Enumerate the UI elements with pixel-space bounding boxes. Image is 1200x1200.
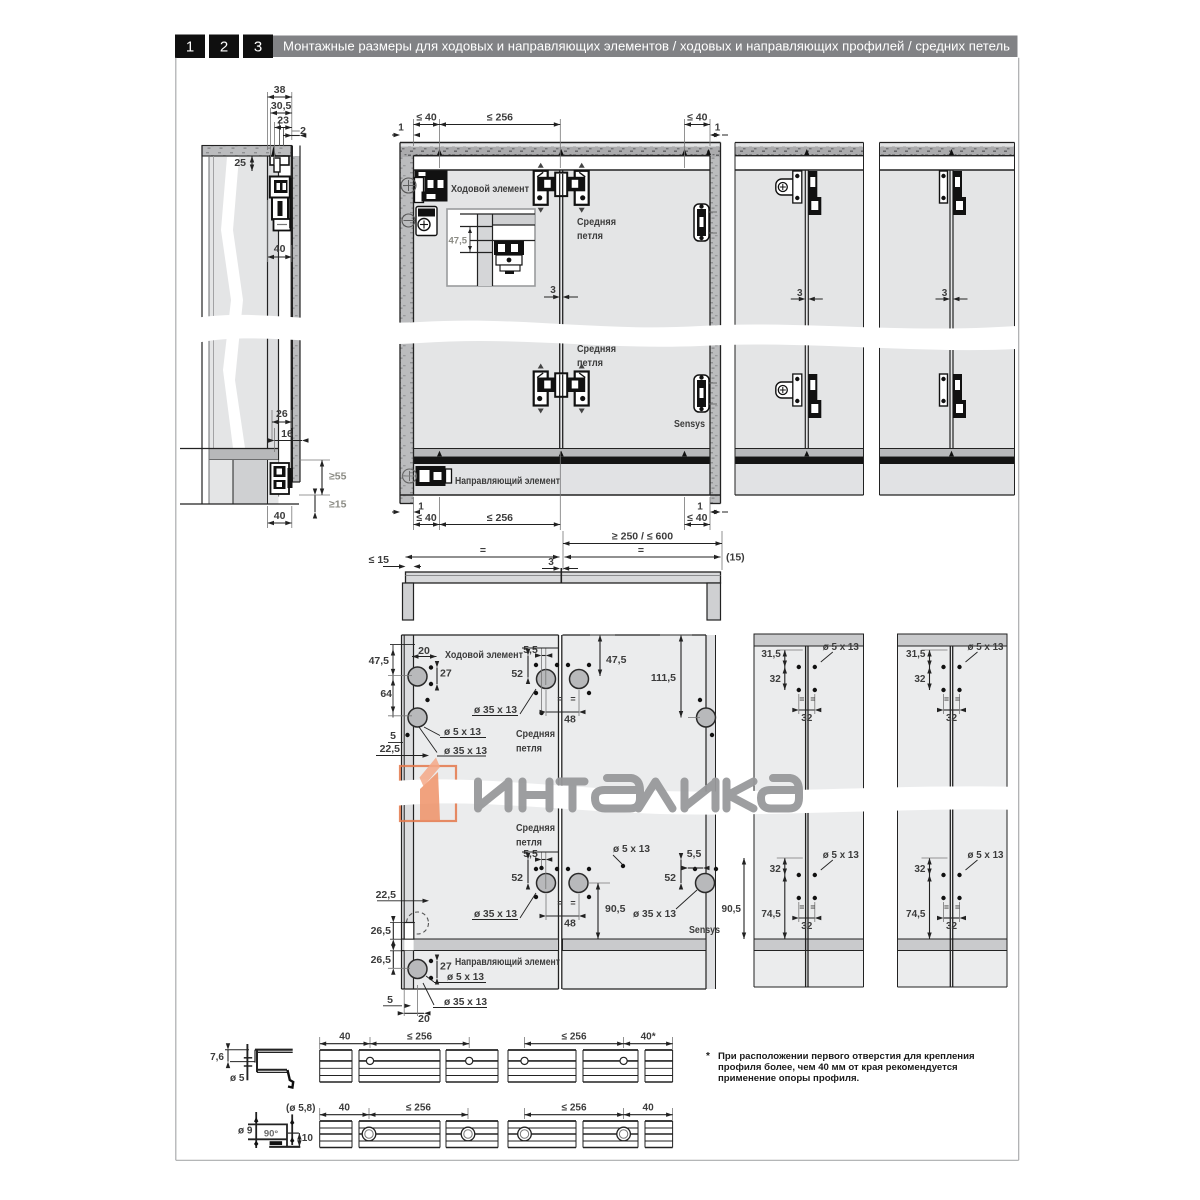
svg-text:31,5: 31,5: [761, 649, 781, 660]
svg-text:20: 20: [418, 645, 430, 657]
svg-text:64: 64: [380, 688, 392, 700]
svg-text:≥15: ≥15: [329, 499, 347, 511]
svg-text:Ходовой элемент: Ходовой элемент: [445, 649, 523, 661]
svg-text:2: 2: [220, 39, 228, 56]
svg-text:петля: петля: [516, 837, 542, 849]
svg-text:32: 32: [770, 864, 782, 875]
svg-text:48: 48: [564, 714, 576, 726]
svg-text:40*: 40*: [641, 1032, 656, 1043]
svg-text:ø 5: ø 5: [230, 1073, 245, 1084]
svg-text:26,5: 26,5: [371, 925, 392, 937]
svg-text:74,5: 74,5: [906, 909, 926, 920]
svg-text:Средняя: Средняя: [516, 728, 555, 740]
svg-text:≥ 250 / ≤ 600: ≥ 250 / ≤ 600: [612, 531, 673, 543]
svg-text:Направляющий элемент: Направляющий элемент: [455, 475, 560, 487]
svg-text:10: 10: [302, 1133, 314, 1144]
svg-text:Sensys: Sensys: [689, 924, 720, 936]
svg-text:32: 32: [770, 674, 782, 685]
svg-text:(15): (15): [726, 552, 745, 564]
svg-text:5: 5: [390, 730, 396, 742]
svg-text:27: 27: [440, 668, 452, 680]
svg-text:Ходовой элемент: Ходовой элемент: [451, 183, 529, 195]
svg-text:петля: петля: [516, 743, 542, 755]
svg-text:ø 9: ø 9: [238, 1126, 253, 1137]
svg-text:5,5: 5,5: [687, 848, 702, 860]
svg-text:=: =: [944, 902, 949, 912]
svg-text:=: =: [480, 545, 486, 557]
svg-text:При расположении первого отвер: При расположении первого отверстия для к…: [718, 1051, 975, 1062]
svg-text:≤ 256: ≤ 256: [487, 512, 513, 524]
svg-text:74,5: 74,5: [761, 909, 781, 920]
svg-text:26: 26: [276, 408, 288, 420]
svg-text:≤ 256: ≤ 256: [407, 1032, 432, 1043]
svg-text:26,5: 26,5: [371, 954, 392, 966]
svg-text:25: 25: [234, 157, 246, 169]
svg-text:Sensys: Sensys: [674, 418, 705, 430]
svg-text:5: 5: [387, 994, 393, 1006]
svg-text:40: 40: [643, 1103, 655, 1114]
svg-text:=: =: [944, 694, 949, 704]
svg-text:22,5: 22,5: [380, 743, 401, 755]
svg-text:=: =: [557, 694, 562, 704]
svg-text:Направляющий элемент: Направляющий элемент: [455, 956, 560, 968]
svg-text:32: 32: [801, 713, 813, 724]
svg-text:32: 32: [946, 713, 958, 724]
svg-text:=: =: [799, 694, 804, 704]
svg-text:=: =: [955, 902, 960, 912]
svg-text:7,6: 7,6: [210, 1052, 224, 1063]
svg-text:90°: 90°: [264, 1128, 279, 1139]
svg-text:16: 16: [281, 428, 293, 440]
svg-text:1: 1: [398, 123, 404, 134]
svg-text:≤ 256: ≤ 256: [562, 1103, 587, 1114]
svg-text:20: 20: [418, 1013, 430, 1025]
svg-text:30,5: 30,5: [271, 100, 292, 112]
svg-text:40: 40: [339, 1103, 351, 1114]
svg-text:32: 32: [914, 864, 926, 875]
svg-text:52: 52: [511, 668, 523, 680]
svg-text:ø 35 x 13: ø 35 x 13: [444, 996, 487, 1008]
svg-text:≤ 40: ≤ 40: [687, 512, 708, 524]
svg-text:ø 5 x 13: ø 5 x 13: [968, 850, 1004, 861]
svg-text:1: 1: [697, 502, 703, 513]
svg-text:32: 32: [946, 921, 958, 932]
svg-text:ø 5 x 13: ø 5 x 13: [968, 642, 1004, 653]
svg-text:Монтажные размеры для ходовых: Монтажные размеры для ходовых и направля…: [283, 39, 1010, 54]
svg-text:48: 48: [564, 918, 576, 930]
svg-text:=: =: [799, 902, 804, 912]
svg-text:3: 3: [548, 557, 554, 568]
svg-text:≤ 256: ≤ 256: [562, 1032, 587, 1043]
svg-text:ø 35 x 13: ø 35 x 13: [444, 745, 487, 757]
svg-text:Средняя: Средняя: [516, 822, 555, 834]
svg-text:≥55: ≥55: [329, 471, 347, 483]
svg-text:ø 35 x 13: ø 35 x 13: [474, 908, 517, 920]
svg-text:40: 40: [274, 243, 286, 255]
svg-text:111,5: 111,5: [651, 672, 676, 684]
svg-text:32: 32: [801, 921, 813, 932]
svg-text:ø 35 x 13: ø 35 x 13: [474, 704, 517, 716]
svg-text:петля: петля: [577, 357, 603, 369]
svg-text:=: =: [557, 898, 562, 908]
svg-text:≤ 256: ≤ 256: [487, 112, 513, 124]
svg-text:ø 5 x 13: ø 5 x 13: [447, 971, 484, 983]
svg-text:31,5: 31,5: [906, 649, 926, 660]
svg-text:38: 38: [274, 84, 286, 96]
svg-text:ø 5 x 13: ø 5 x 13: [823, 642, 859, 653]
svg-text:≤ 40: ≤ 40: [687, 112, 708, 124]
svg-text:40: 40: [339, 1032, 351, 1043]
svg-text:23: 23: [277, 115, 289, 127]
svg-text:=: =: [638, 545, 644, 557]
svg-text:петля: петля: [577, 230, 603, 242]
svg-text:1: 1: [715, 123, 721, 134]
svg-text:90,5: 90,5: [722, 904, 742, 915]
svg-text:≤ 40: ≤ 40: [416, 512, 437, 524]
svg-text:2: 2: [300, 125, 306, 137]
svg-text:52: 52: [511, 872, 523, 884]
svg-text:90,5: 90,5: [605, 903, 626, 915]
svg-text:=: =: [570, 694, 575, 704]
svg-text:22,5: 22,5: [376, 889, 397, 901]
svg-text:47,5: 47,5: [606, 654, 627, 666]
svg-text:применение опоры профиля.: применение опоры профиля.: [718, 1073, 859, 1084]
svg-text:(ø 5,8): (ø 5,8): [286, 1103, 315, 1114]
svg-text:52: 52: [664, 872, 676, 884]
svg-text:=: =: [810, 902, 815, 912]
svg-text:≤ 256: ≤ 256: [406, 1103, 431, 1114]
svg-text:ø 5 x 13: ø 5 x 13: [823, 850, 859, 861]
svg-text:профиля более, чем 40 мм от кр: профиля более, чем 40 мм от края рекомен…: [718, 1062, 958, 1073]
svg-text:ø 35 x 13: ø 35 x 13: [633, 908, 676, 920]
svg-text:1: 1: [186, 39, 194, 56]
svg-text:*: *: [706, 1051, 710, 1062]
svg-text:32: 32: [914, 674, 926, 685]
svg-text:Средняя: Средняя: [577, 216, 616, 228]
svg-text:3: 3: [254, 39, 262, 56]
svg-text:47,5: 47,5: [369, 655, 390, 667]
svg-text:47,5: 47,5: [449, 236, 468, 247]
svg-text:≤ 15: ≤ 15: [369, 554, 390, 566]
svg-text:3: 3: [550, 285, 556, 296]
svg-text:=: =: [570, 898, 575, 908]
svg-text:ø 5 x 13: ø 5 x 13: [613, 843, 650, 855]
svg-text:=: =: [955, 694, 960, 704]
svg-text:≤ 40: ≤ 40: [416, 112, 437, 124]
svg-text:ø 5 x 13: ø 5 x 13: [444, 726, 481, 738]
svg-text:=: =: [810, 694, 815, 704]
svg-text:40: 40: [274, 510, 286, 522]
